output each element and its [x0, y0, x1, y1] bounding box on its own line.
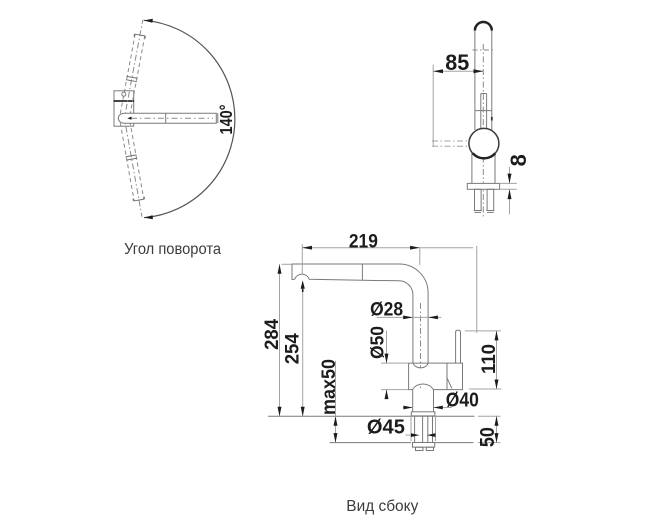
svg-text:Вид сбоку: Вид сбоку — [346, 498, 418, 515]
svg-text:219: 219 — [349, 231, 378, 252]
svg-text:110: 110 — [479, 344, 500, 374]
svg-text:Ø50: Ø50 — [367, 326, 388, 359]
svg-text:85: 85 — [445, 50, 469, 75]
svg-text:Ø40: Ø40 — [446, 388, 479, 411]
svg-text:284: 284 — [262, 318, 283, 349]
svg-text:50: 50 — [476, 427, 499, 447]
svg-text:Ø28: Ø28 — [370, 299, 403, 320]
svg-text:140°: 140° — [216, 105, 236, 135]
svg-text:254: 254 — [282, 333, 303, 364]
svg-text:Ø45: Ø45 — [367, 417, 405, 439]
svg-text:Угол поворота: Угол поворота — [124, 241, 221, 258]
svg-text:8: 8 — [506, 154, 531, 166]
svg-text:max50: max50 — [319, 359, 340, 415]
